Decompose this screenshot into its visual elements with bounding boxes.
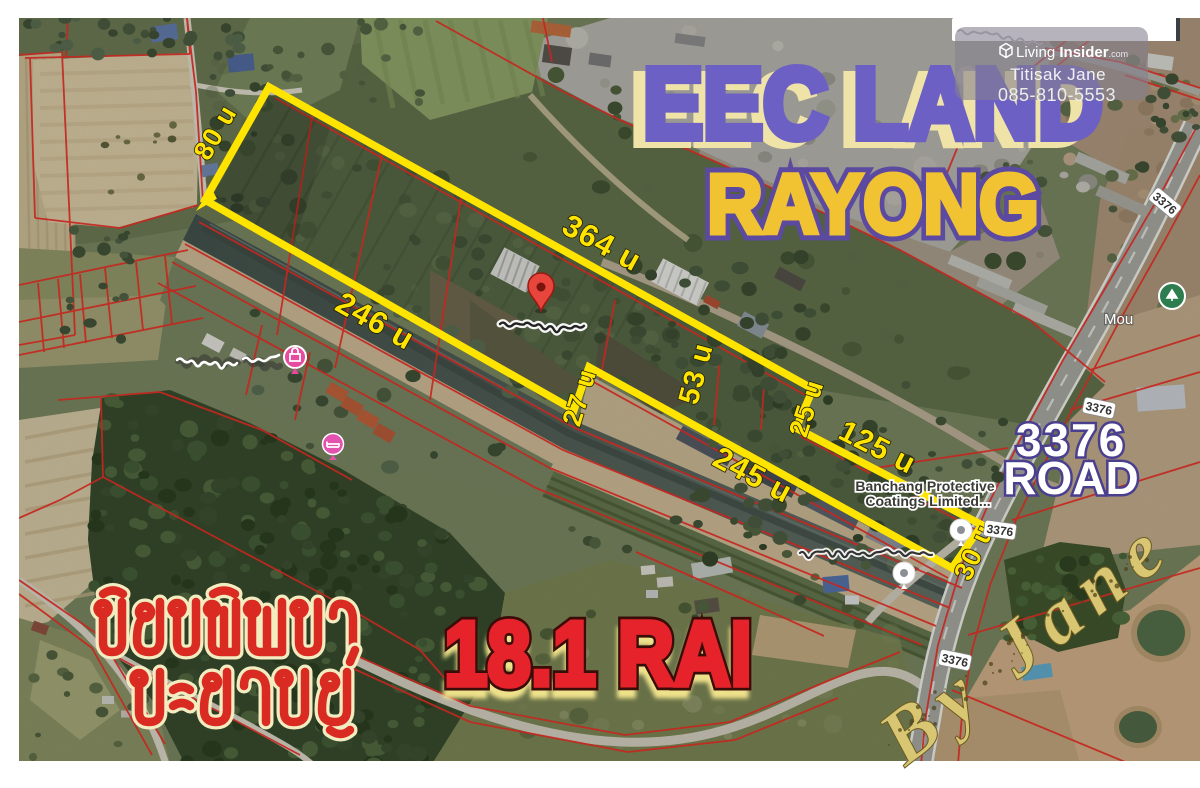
svg-text:Titisak Jane: Titisak Jane <box>1010 65 1106 84</box>
svg-text:ROAD: ROAD <box>1003 452 1138 504</box>
svg-text:Mou: Mou <box>1104 311 1133 328</box>
svg-text:085-810-5553: 085-810-5553 <box>998 85 1116 105</box>
svg-text:RAYONG: RAYONG <box>707 157 1039 251</box>
svg-text:18.1 RAI: 18.1 RAI <box>444 604 752 705</box>
svg-text:Banchang Protective: Banchang Protective <box>855 478 994 494</box>
svg-text:Coatings Limited...: Coatings Limited... <box>865 493 990 509</box>
